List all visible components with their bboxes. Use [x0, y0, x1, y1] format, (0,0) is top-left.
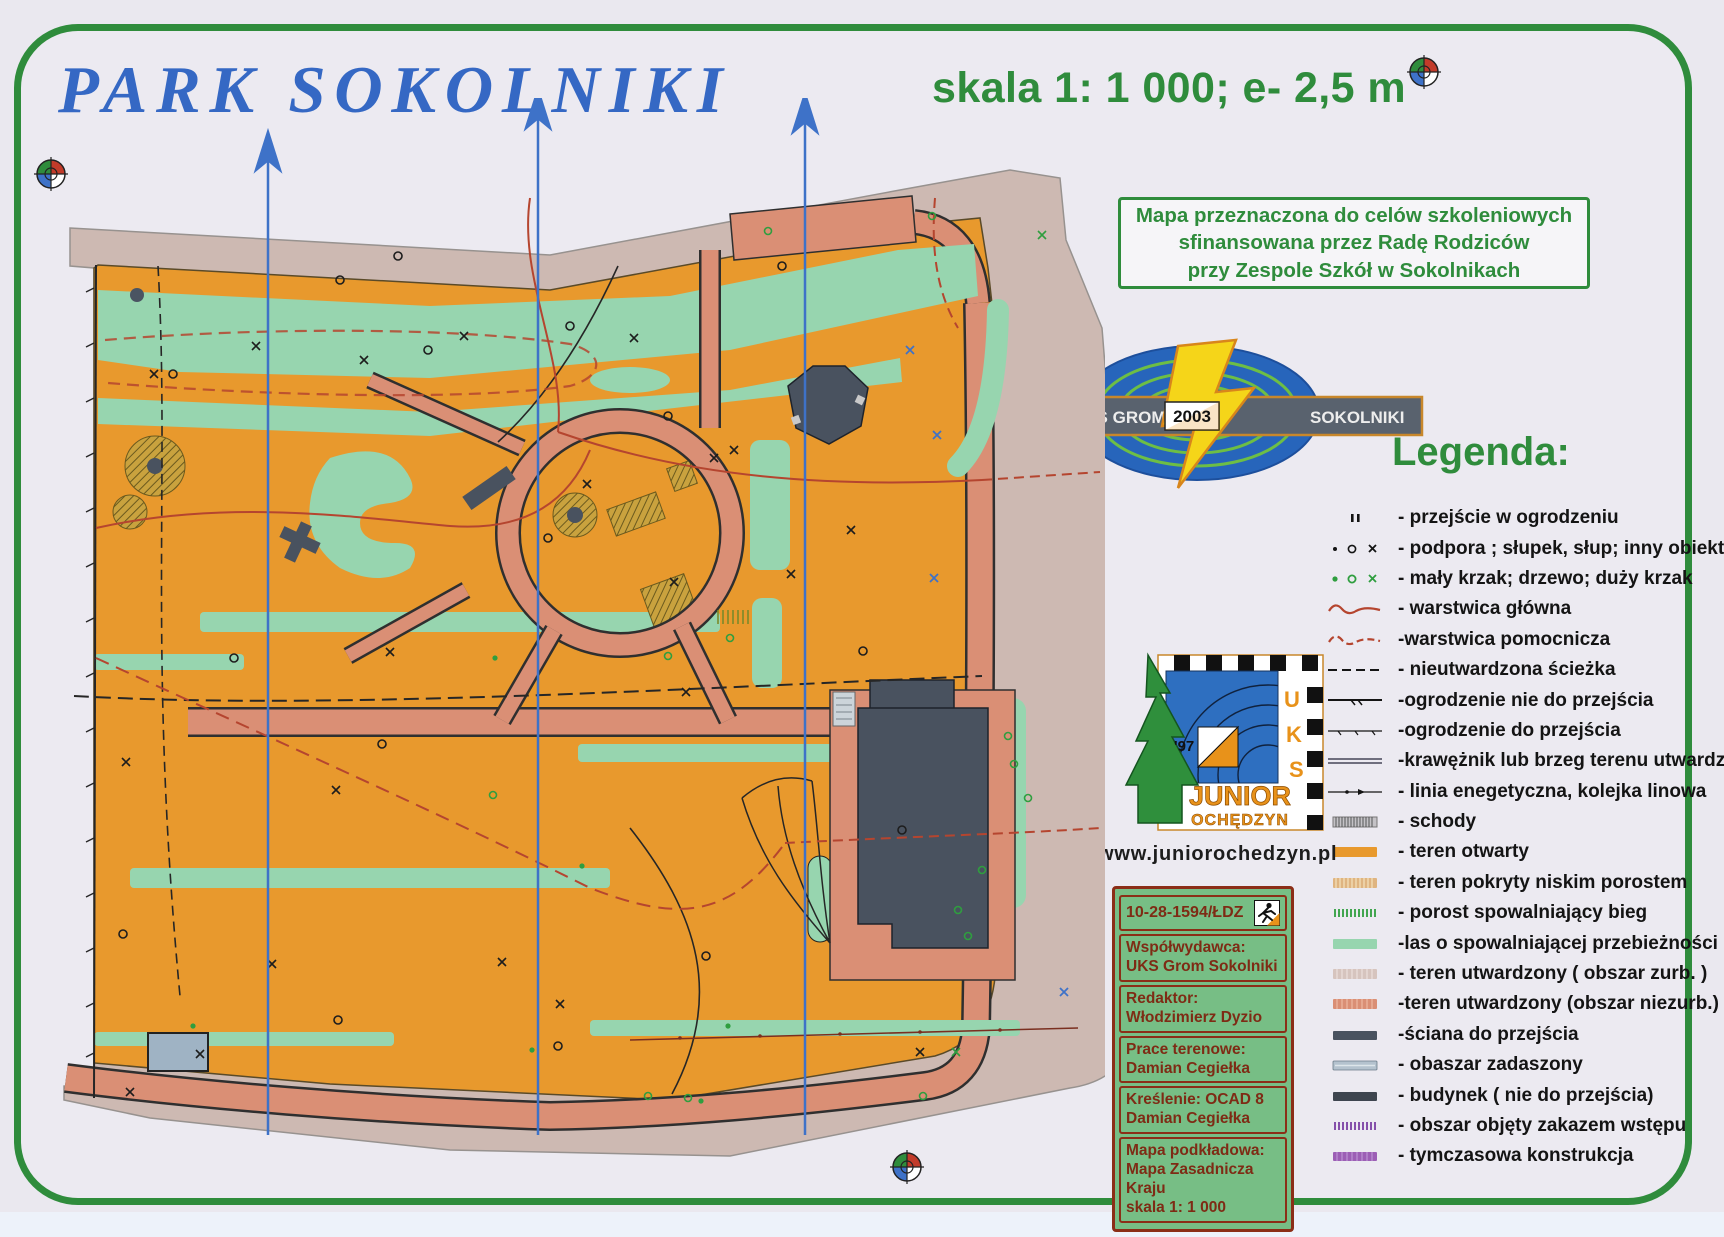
legend-row: - teren pokryty niskim porostem — [1312, 868, 1717, 898]
banner-year: 2003 — [1173, 407, 1211, 426]
orienteering-flag-icon — [1198, 727, 1238, 767]
legend-heading: Legenda: — [1392, 430, 1570, 475]
slow-forest-icon — [1312, 936, 1398, 952]
logo-name-line2: OCHĘDZYN — [1191, 812, 1289, 829]
logo-letter-s: S — [1289, 757, 1304, 782]
logo-letter-u: U — [1284, 687, 1300, 712]
map-id: 10-28-1594/ŁDZ — [1126, 903, 1243, 923]
club-website-url: www.juniorochedzyn.pl — [1098, 843, 1378, 866]
legend-row: -ogrodzenie do przejścia — [1312, 716, 1717, 746]
credit-drafting: Kreślenie: OCAD 8 Damian Cegiełka — [1119, 1086, 1287, 1134]
purpose-note-box: Mapa przeznaczona do celów szkoleniowych… — [1118, 197, 1590, 289]
contour-main-icon — [1312, 601, 1398, 617]
legend-row: - schody — [1312, 807, 1717, 837]
legend-row: - podpora ; słupek, słup; inny obiekt — [1312, 533, 1717, 563]
logo-letter-k: K — [1286, 722, 1302, 747]
legend-row: - przejście w ogrodzeniu — [1312, 503, 1717, 533]
map-id-cell: 10-28-1594/ŁDZ — [1119, 895, 1287, 931]
legend-row: -las o spowalniającej przebieżności — [1312, 928, 1717, 958]
legend-row: - warstwica główna — [1312, 594, 1717, 624]
legend-row: -teren utwardzony (obszar niezurb.) — [1312, 989, 1717, 1019]
credit-fieldwork: Prace terenowe: Damian Cegiełka — [1119, 1036, 1287, 1084]
credits-panel: 10-28-1594/ŁDZ Współwydawca: UKS Grom So… — [1112, 886, 1294, 1232]
low-vegetation-icon — [1312, 875, 1398, 891]
uks-junior-logo: '97 U K S JUNIOR OCHĘDZYN — [1118, 645, 1333, 837]
legend: - przejście w ogrodzeniu - podpora ; słu… — [1312, 503, 1717, 1172]
paved-nonurban-icon — [1312, 996, 1398, 1012]
credit-basemap: Mapa podkładowa: Mapa Zasadnicza Kraju s… — [1119, 1137, 1287, 1223]
legend-row: - linia enegetyczna, kolejka linowa — [1312, 777, 1717, 807]
undergrowth-hatch — [718, 610, 748, 624]
scanned-map-page: { "header": { "title": "PARK SOKOLNIKI",… — [0, 0, 1724, 1237]
legend-row: - obaszar zadaszony — [1312, 1050, 1717, 1080]
legend-row: - tymczasowa konstrukcja — [1312, 1141, 1717, 1171]
passable-wall-icon — [1312, 1027, 1398, 1043]
scan-bottom-strip — [0, 1212, 1724, 1237]
temporary-construction-icon — [1312, 1148, 1398, 1164]
runner-icon — [1254, 900, 1280, 926]
registration-mark-top-right — [1407, 55, 1441, 89]
credit-editor: Redaktor: Włodzimierz Dyzio — [1119, 985, 1287, 1033]
legend-row: - porost spowalniający bieg — [1312, 898, 1717, 928]
forbidden-area-icon — [1312, 1118, 1398, 1134]
legend-row: -ogrodzenie nie do przejścia — [1312, 685, 1717, 715]
bush-tree-bigbush-icon — [1312, 571, 1398, 587]
legend-row: -krawężnik lub brzeg terenu utwardz. — [1312, 746, 1717, 776]
fence-gap-icon — [1312, 510, 1398, 526]
slowing-undergrowth-icon — [1312, 905, 1398, 921]
canopy-area-icon — [1312, 1057, 1398, 1073]
logo-year: '97 — [1174, 738, 1194, 755]
legend-row: - teren utwardzony ( obszar zurb. ) — [1312, 959, 1717, 989]
legend-row: - nieutwardzona ścieżka — [1312, 655, 1717, 685]
orienteering-map — [30, 98, 1105, 1178]
legend-row: - obszar objęty zakazem wstępu — [1312, 1111, 1717, 1141]
paved-urban-icon — [1312, 966, 1398, 982]
legend-row: - mały krzak; drzewo; duży krzak — [1312, 564, 1717, 594]
legend-row: -ściana do przejścia — [1312, 1020, 1717, 1050]
legend-row: - budynek ( nie do przejścia) — [1312, 1080, 1717, 1110]
legend-row: -warstwica pomocnicza — [1312, 625, 1717, 655]
support-post-object-icon — [1312, 541, 1398, 557]
building-icon — [1312, 1088, 1398, 1104]
uks-grom-logo: UKS GROM SOKOLNIKI 2003 — [1058, 336, 1426, 494]
logo-name-line1: JUNIOR — [1189, 781, 1291, 811]
credit-copublisher: Współwydawca: UKS Grom Sokolniki — [1119, 934, 1287, 982]
banner-right-text: SOKOLNIKI — [1310, 408, 1404, 427]
